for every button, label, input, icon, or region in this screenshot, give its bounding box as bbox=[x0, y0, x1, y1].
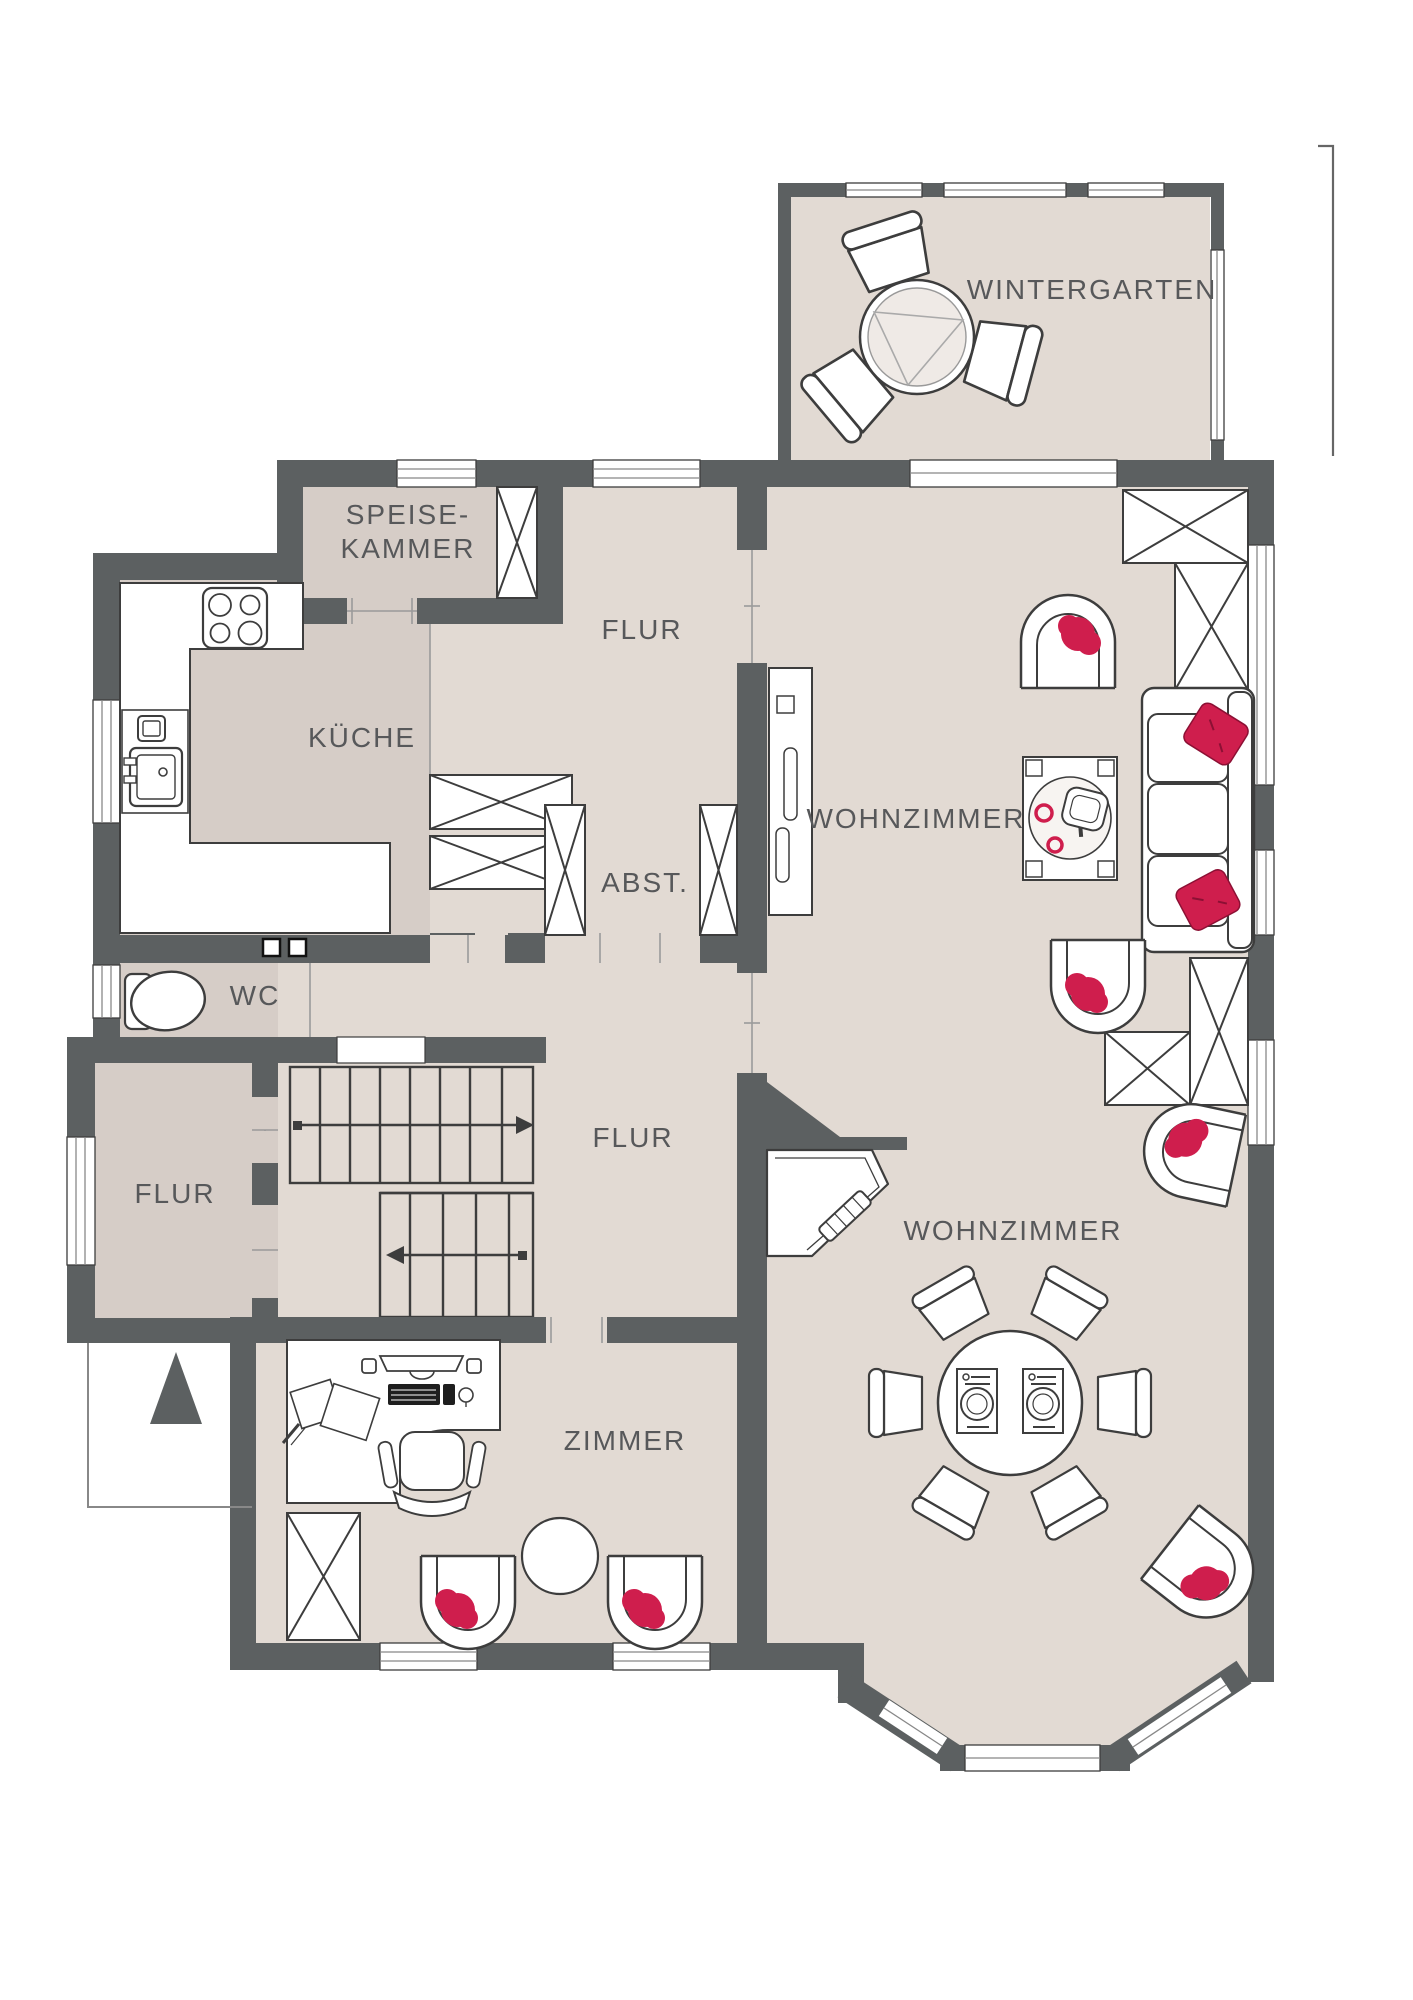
cupboard-icon bbox=[545, 805, 585, 935]
keyboard-icon bbox=[388, 1384, 455, 1405]
label-flur-center: FLUR bbox=[592, 1122, 673, 1153]
sideboard-icon bbox=[769, 668, 812, 915]
label-zimmer: ZIMMER bbox=[564, 1425, 686, 1456]
dining-chair-icon bbox=[1098, 1369, 1151, 1437]
window bbox=[67, 1137, 95, 1265]
cupboard-icon bbox=[700, 805, 737, 935]
window bbox=[93, 965, 120, 1018]
window bbox=[397, 460, 476, 487]
terrace-outline bbox=[1318, 146, 1333, 456]
label-flur-left: FLUR bbox=[134, 1178, 215, 1209]
place-setting-icon bbox=[1023, 1369, 1063, 1433]
hall-strip-floor bbox=[310, 963, 430, 1037]
label-kueche: KÜCHE bbox=[308, 722, 416, 753]
porch-outline bbox=[88, 1343, 252, 1507]
label-wintergarten: WINTERGARTEN bbox=[967, 274, 1218, 305]
sink-icon bbox=[122, 710, 188, 813]
label-wohnzimmer-upper: WOHNZIMMER bbox=[806, 803, 1025, 834]
wardrobe-icon bbox=[287, 1513, 360, 1640]
dining-chair-icon bbox=[869, 1369, 922, 1437]
armchair-icon bbox=[608, 1556, 702, 1649]
label-flur-top: FLUR bbox=[601, 614, 682, 645]
entrance-arrow-icon bbox=[150, 1352, 202, 1424]
armchair-icon bbox=[1021, 595, 1115, 688]
window bbox=[593, 460, 700, 487]
label-abst: ABST. bbox=[601, 867, 689, 898]
side-table-icon bbox=[522, 1518, 598, 1594]
coffee-table-icon bbox=[1023, 757, 1117, 880]
label-speisekammer-line2: KAMMER bbox=[341, 533, 476, 564]
floor-plan-drawing: WINTERGARTEN SPEISE- KAMMER FLUR KÜCHE W… bbox=[0, 0, 1413, 2000]
floor-plan: WINTERGARTEN SPEISE- KAMMER FLUR KÜCHE W… bbox=[0, 0, 1413, 2000]
label-wc: WC bbox=[230, 980, 281, 1011]
stove-icon bbox=[203, 588, 267, 648]
armchair-icon bbox=[421, 1556, 515, 1649]
window bbox=[93, 700, 120, 823]
armchair-icon bbox=[1051, 940, 1145, 1033]
label-speisekammer-line1: SPEISE- bbox=[346, 499, 470, 530]
room-wohnzimmer-lower-floor bbox=[838, 1643, 1248, 1680]
label-wohnzimmer-lower: WOHNZIMMER bbox=[903, 1215, 1122, 1246]
cupboard-icon bbox=[497, 487, 537, 598]
sofa-icon bbox=[1142, 688, 1254, 952]
wintergarten-threshold bbox=[910, 460, 1117, 487]
place-setting-icon bbox=[957, 1369, 997, 1433]
